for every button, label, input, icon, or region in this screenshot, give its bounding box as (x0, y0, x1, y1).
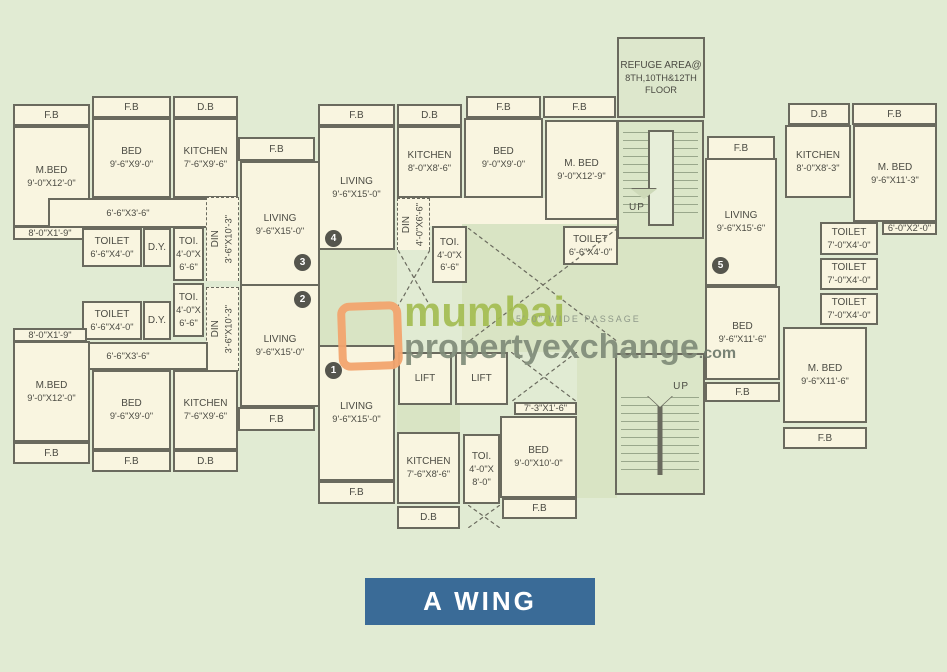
room-dims: 7'-6"X9'-6" (184, 410, 227, 422)
room-label: M. BED (808, 362, 842, 375)
room-label: TOILET (95, 308, 130, 321)
room-label: F.B (44, 447, 58, 460)
room-refuge-area: REFUGE AREA@8TH,10TH&12TH FLOOR (617, 37, 705, 118)
room-u4-mbed: M. BED9'-0"X12'-9" (545, 120, 618, 220)
room-label: D.B (811, 108, 828, 121)
room-label: F.B (349, 109, 363, 122)
room-label: BED (121, 397, 142, 410)
room-dims: 9'-6"X15'-0" (332, 413, 380, 425)
stair-landing (648, 130, 674, 226)
room-u1-db: D.B (397, 506, 460, 529)
room-dims: 6'-6"X3'-6" (106, 350, 149, 362)
room-u5-fb-mbed: F.B (852, 103, 937, 125)
room-u1-strip: 7'-3"X1'-6" (514, 402, 577, 415)
room-dims: 6'-6"X4'-0" (90, 248, 133, 260)
staircase-upper: UP (617, 120, 704, 239)
room-dims: 7'-0"X4'-0" (827, 309, 870, 321)
room-dims: 8'-0"X1'-9" (28, 227, 71, 239)
room-u3-dy: D.Y. (143, 228, 171, 267)
corridor-lobby-mid-passage (318, 250, 397, 346)
room-u5-mbed-top: M. BED9'-6"X11'-3" (853, 125, 937, 222)
room-dims: 6'-0"X2'-0" (888, 222, 931, 234)
room-label: D.B (420, 511, 437, 524)
room-dims: 4'-0"X6'-6" (414, 203, 427, 246)
room-label: KITCHEN (407, 455, 451, 468)
room-label: F.B (349, 486, 363, 499)
room-dims: 9'-6"X11'-6" (801, 375, 849, 387)
room-u3-toi: TOI.4'-0"X 6'-6" (173, 227, 204, 281)
room-dims: 9'-6"X15'-0" (256, 346, 304, 358)
duct-cross-icon (398, 250, 430, 306)
room-u5-toilet-1: TOILET7'-0"X4'-0" (820, 222, 878, 255)
flat-number-badge-2: 2 (294, 291, 311, 308)
room-label: TOILET (573, 233, 608, 246)
room-dims: 3'-6"X10'-3" (223, 305, 236, 353)
room-label: F.B (124, 455, 138, 468)
room-u1-bed: BED9'-0"X10'-0" (500, 416, 577, 498)
room-label: F.B (496, 101, 510, 114)
room-label: TOI. (179, 235, 198, 248)
room-dims: 8'-0"X1'-9" (28, 329, 71, 341)
room-label: LIVING (340, 400, 373, 413)
room-label: TOI. (440, 236, 459, 249)
room-u1-kitchen: KITCHEN7'-6"X8'-6" (397, 432, 460, 504)
stair-up-label: UP (629, 202, 645, 213)
room-label: LIVING (264, 212, 297, 225)
room-label: D.B (197, 101, 214, 114)
room-u5-toilet-2: TOILET7'-0"X4'-0" (820, 258, 878, 290)
room-dims: 9'-0"X12'-0" (27, 177, 75, 189)
room-u5-bed: BED9'-6"X11'-6" (705, 286, 780, 380)
stair-divider (658, 395, 663, 475)
room-dims: 9'-6"X11'-3" (871, 174, 919, 186)
room-label: REFUGE AREA@ (620, 59, 701, 72)
room-u1-fb-living: F.B (318, 481, 395, 504)
room-dims: 8'-0"X8'-3" (796, 162, 839, 174)
room-label: LIVING (264, 333, 297, 346)
room-u4-fb-mbed: F.B (543, 96, 616, 118)
room-u2-din: DIN3'-6"X10'-3" (206, 287, 239, 371)
room-dims: 4'-0"X 8'-0" (466, 463, 497, 487)
room-u5-toilet-3: TOILET7'-0"X4'-0" (820, 293, 878, 325)
room-label: M. BED (564, 157, 598, 170)
stair-direction-icon (631, 189, 657, 199)
stair-up-label: UP (673, 381, 689, 392)
room-u2-db: D.B (173, 450, 238, 472)
room-u3-fb-living: F.B (238, 137, 315, 161)
room-u1-fb-bed: F.B (502, 498, 577, 519)
room-label: F.B (124, 101, 138, 114)
room-label: D.Y. (148, 241, 166, 254)
passage-width-label: 5'-0" WIDE PASSAGE (516, 314, 641, 324)
stair-direction-icon (647, 395, 673, 407)
room-u5-fb-mbed-bottom: F.B (783, 427, 867, 449)
flat-number-badge-4: 4 (325, 230, 342, 247)
flat-number-badge-3: 3 (294, 254, 311, 271)
room-label: DIN (400, 203, 414, 246)
room-u4-fb-bed: F.B (466, 96, 541, 118)
room-label: TOILET (832, 296, 867, 309)
room-u3-din: DIN3'-6"X10'-3" (206, 197, 239, 281)
room-label: F.B (572, 101, 586, 114)
room-dims: 7'-3"X1'-6" (524, 402, 567, 414)
room-label: BED (528, 444, 549, 457)
corridor-lobby-east-of-bed (577, 345, 617, 498)
room-label: LIVING (725, 209, 758, 222)
room-label: LIFT (415, 372, 436, 385)
room-u2-toi: TOI.4'-0"X 6'-6" (173, 283, 204, 337)
room-u4-din: DIN4'-0"X6'-6" (397, 198, 430, 250)
duct-cross-icon (468, 505, 500, 528)
room-u2-balcony: 8'-0"X1'-9" (13, 328, 87, 342)
room-dims: 8'-0"X8'-6" (408, 162, 451, 174)
room-dims: 8TH,10TH&12TH FLOOR (620, 72, 702, 96)
room-u5-mbed-bottom: M. BED9'-6"X11'-6" (783, 327, 867, 423)
room-u4-bed: BED9'-0"X9'-0" (464, 118, 543, 198)
room-dims: 7'-6"X8'-6" (407, 468, 450, 480)
wing-title: A WING (365, 578, 595, 625)
room-u3-kitchen: KITCHEN7'-6"X9'-6" (173, 118, 238, 198)
flat-number-badge-5: 5 (712, 257, 729, 274)
room-dims: 6'-6"X4'-0" (569, 246, 612, 258)
room-u4-toi: TOI.4'-0"X 6'-6" (432, 226, 467, 283)
room-label: F.B (532, 502, 546, 515)
room-label: F.B (269, 413, 283, 426)
room-u3-bed: BED9'-6"X9'-0" (92, 118, 171, 198)
room-label: F.B (44, 109, 58, 122)
room-label: D.Y. (148, 314, 166, 327)
room-label: D.B (197, 455, 214, 468)
room-dims: 3'-6"X10'-3" (223, 215, 236, 263)
room-u2-fb-mbed: F.B (13, 442, 90, 464)
room-dims: 7'-0"X4'-0" (827, 239, 870, 251)
room-label: TOI. (472, 450, 491, 463)
room-u3-fb-mbed: F.B (13, 104, 90, 126)
room-u3-balcony: 8'-0"X1'-9" (13, 226, 87, 240)
room-dims: 7'-0"X4'-0" (827, 274, 870, 286)
room-u5-strip: 6'-0"X2'-0" (882, 222, 937, 235)
room-u4-fb-living: F.B (318, 104, 395, 126)
room-dims: 9'-6"X9'-0" (110, 410, 153, 422)
room-dims: 9'-6"X15'-0" (332, 188, 380, 200)
room-label: F.B (269, 143, 283, 156)
room-u2-fb-bed: F.B (92, 450, 171, 472)
room-lift-2: LIFT (455, 352, 508, 405)
room-u3-fb-bed: F.B (92, 96, 171, 118)
room-label: KITCHEN (184, 145, 228, 158)
room-u3-db: D.B (173, 96, 238, 118)
room-u3-toilet: TOILET6'-6"X4'-0" (82, 228, 142, 267)
room-label: BED (121, 145, 142, 158)
floor-plan: mumbai propertyexchange.com 5'-0" WIDE P… (0, 0, 947, 672)
room-dims: 9'-0"X12'-9" (557, 170, 605, 182)
room-label: M.BED (36, 379, 68, 392)
corridor-lobby-lift-south (397, 405, 460, 433)
room-dims: 7'-6"X9'-6" (184, 158, 227, 170)
room-label: TOI. (179, 291, 198, 304)
corridor-lobby-stairs-link (617, 238, 705, 356)
room-label: BED (732, 320, 753, 333)
room-u2-mbed: M.BED9'-0"X12'-0" (13, 341, 90, 442)
room-u5-fb-living: F.B (707, 136, 775, 160)
room-dims: 6'-6"X3'-6" (106, 207, 149, 219)
room-dims: 6'-6"X4'-0" (90, 321, 133, 333)
room-u4-toilet: TOILET6'-6"X4'-0" (563, 226, 618, 265)
room-label: KITCHEN (408, 149, 452, 162)
room-dims: 9'-6"X11'-6" (719, 333, 767, 345)
room-u5-fb-bed: F.B (705, 382, 780, 402)
room-dims: 4'-0"X 6'-6" (176, 248, 201, 272)
room-u2-fb-living: F.B (238, 407, 315, 431)
room-label: KITCHEN (796, 149, 840, 162)
room-label: DIN (209, 305, 223, 353)
room-label: D.B (421, 109, 438, 122)
room-label: BED (493, 145, 514, 158)
room-u1-toi: TOI.4'-0"X 8'-0" (463, 434, 500, 504)
room-label: LIVING (340, 175, 373, 188)
room-label: F.B (887, 108, 901, 121)
room-dims: 9'-6"X9'-0" (110, 158, 153, 170)
room-label: F.B (735, 386, 749, 399)
room-lift-1: LIFT (398, 352, 452, 405)
room-label: KITCHEN (184, 397, 228, 410)
room-u5-kitchen: KITCHEN8'-0"X8'-3" (785, 125, 851, 198)
room-label: M. BED (878, 161, 912, 174)
room-dims: 9'-6"X15'-0" (256, 225, 304, 237)
room-u5-db: D.B (788, 103, 850, 125)
flat-number-badge-1: 1 (325, 362, 342, 379)
room-u2-toilet: TOILET6'-6"X4'-0" (82, 301, 142, 340)
room-u4-kitchen: KITCHEN8'-0"X8'-6" (397, 126, 462, 198)
room-dims: 9'-0"X10'-0" (514, 457, 562, 469)
room-label: F.B (734, 142, 748, 155)
room-u2-kitchen: KITCHEN7'-6"X9'-6" (173, 370, 238, 450)
room-u3-hall: 6'-6"X3'-6" (48, 198, 208, 228)
room-dims: 9'-6"X15'-6" (717, 222, 765, 234)
room-dims: 4'-0"X 6'-6" (176, 304, 201, 328)
room-u2-bed: BED9'-6"X9'-0" (92, 370, 171, 450)
room-dims: 9'-0"X12'-0" (27, 392, 75, 404)
room-label: M.BED (36, 164, 68, 177)
room-u2-dy: D.Y. (143, 301, 171, 340)
room-dims: 9'-0"X9'-0" (482, 158, 525, 170)
room-label: TOILET (95, 235, 130, 248)
room-label: F.B (818, 432, 832, 445)
duct-cross-icon (511, 352, 577, 402)
staircase-lower: UP (615, 353, 705, 495)
room-label: DIN (209, 215, 223, 263)
room-label: TOILET (832, 261, 867, 274)
room-label: TOILET (832, 226, 867, 239)
room-label: LIFT (471, 372, 492, 385)
room-dims: 4'-0"X 6'-6" (435, 249, 464, 273)
room-u4-db: D.B (397, 104, 462, 126)
